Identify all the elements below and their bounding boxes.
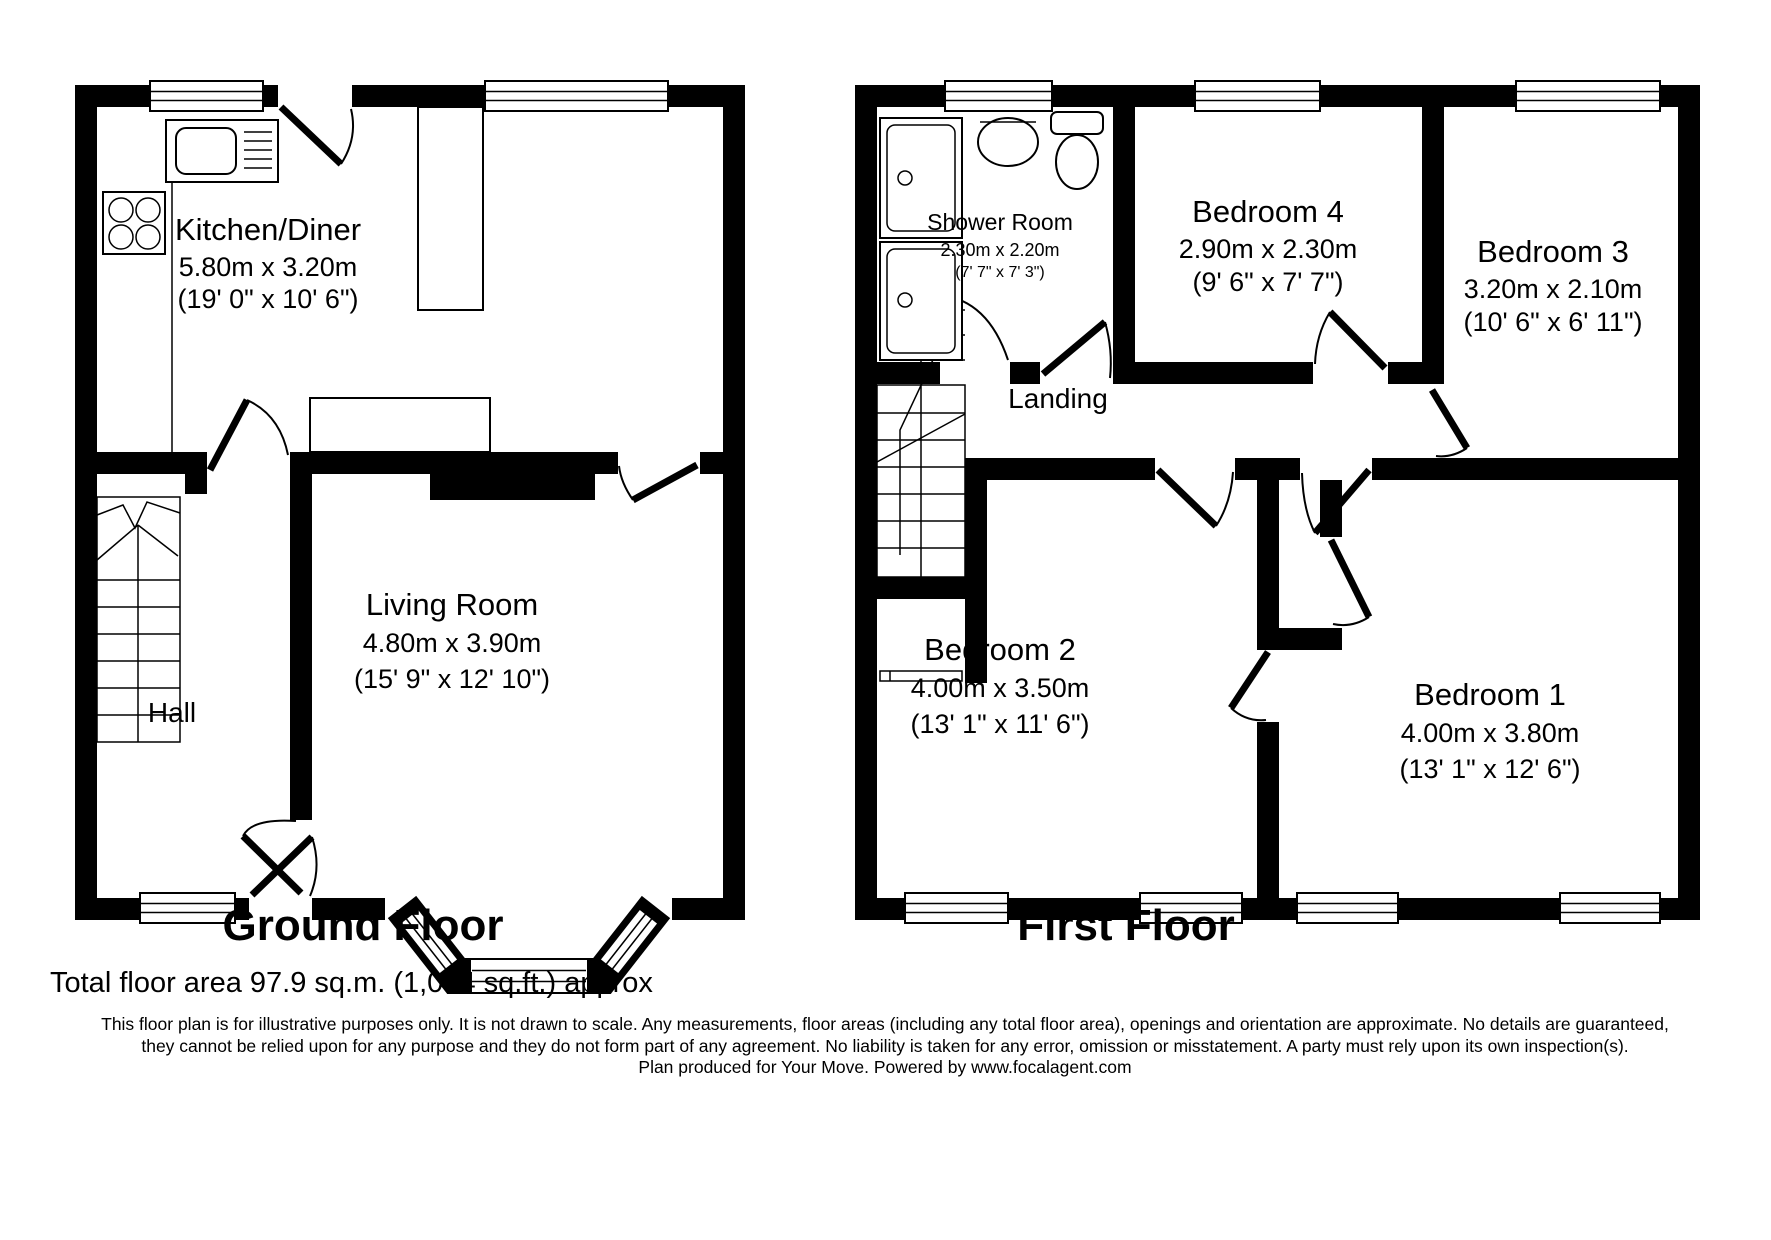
bedroom3-dim-imperial: (10' 6" x 6' 11") [1463, 307, 1642, 337]
bedroom3-door [1432, 390, 1467, 456]
hall-label: Hall [148, 697, 196, 728]
shower-room-dim-imperial: (7' 7" x 7' 3") [955, 264, 1045, 281]
toilet [1051, 112, 1103, 189]
bedroom3-dim-metric: 3.20m x 2.10m [1464, 274, 1643, 304]
kitchen-window-2 [485, 81, 668, 111]
hall-window [140, 893, 235, 923]
back-door [281, 107, 353, 164]
bedroom2-window-1 [905, 893, 1008, 923]
bedroom4-door [1315, 312, 1385, 368]
kitchen-label: Kitchen/Diner [175, 212, 361, 247]
bedroom1-dim-imperial: (13' 1" x 12' 6") [1399, 754, 1580, 784]
kitchen-peninsula [418, 107, 483, 310]
disclaimer-line-1: This floor plan is for illustrative purp… [101, 1014, 1669, 1034]
bedroom1-window-1 [1297, 893, 1398, 923]
bedroom2-door [1158, 470, 1233, 526]
front-door [252, 837, 317, 896]
bedroom3-window [1516, 81, 1660, 111]
kitchen-table [310, 398, 490, 452]
floor-plan-image: Kitchen/Diner 5.80m x 3.20m (19' 0" x 10… [0, 0, 1771, 1240]
bedroom4-window [1195, 81, 1320, 111]
disclaimer-line-3: Plan produced for Your Move. Powered by … [638, 1057, 1131, 1077]
kitchen-dim-metric: 5.80m x 3.20m [179, 252, 358, 282]
landing-door [1043, 322, 1111, 378]
cupboard-door-1 [1331, 540, 1369, 625]
shower-room-window [945, 81, 1052, 111]
chimney-breast [430, 452, 595, 500]
total-floor-area: Total floor area 97.9 sq.m. (1,054 sq.ft… [50, 967, 653, 999]
hob [103, 192, 165, 254]
shower-room-dim-metric: 2.30m x 2.20m [940, 240, 1059, 260]
ground-floor-walls [75, 85, 745, 920]
landing-label: Landing [1008, 383, 1108, 414]
first-floor-title: First Floor [1017, 901, 1235, 950]
bedroom4-dim-metric: 2.90m x 2.30m [1179, 234, 1358, 264]
bedroom1-window-2 [1560, 893, 1660, 923]
bedroom2-dim-metric: 4.00m x 3.50m [911, 673, 1090, 703]
floorplan-page: Kitchen/Diner 5.80m x 3.20m (19' 0" x 10… [0, 0, 1771, 1240]
bedroom4-dim-imperial: (9' 6" x 7' 7") [1192, 267, 1343, 297]
kitchen-dim-imperial: (19' 0" x 10' 6") [177, 284, 358, 314]
bedroom4-label: Bedroom 4 [1192, 194, 1344, 229]
first-floor-plan: Shower Room 2.30m x 2.20m (7' 7" x 7' 3"… [855, 81, 1700, 923]
living-room-dim-metric: 4.80m x 3.90m [363, 628, 542, 658]
kitchen-window [150, 81, 263, 111]
ground-floor-plan: Kitchen/Diner 5.80m x 3.20m (19' 0" x 10… [75, 81, 745, 993]
kitchen-hall-door [210, 400, 288, 470]
disclaimer-line-2: they cannot be relied upon for any purpo… [141, 1036, 1628, 1056]
kitchen-sink [166, 120, 278, 182]
bedroom2-dim-imperial: (13' 1" x 11' 6") [910, 709, 1089, 739]
living-kitchen-door [619, 465, 697, 500]
ground-floor-title: Ground Floor [222, 901, 503, 950]
shower-room-label: Shower Room [927, 209, 1073, 235]
living-room-label: Living Room [366, 587, 538, 622]
living-room-dim-imperial: (15' 9" x 12' 10") [354, 664, 550, 694]
cupboard-door-2 [1231, 652, 1268, 720]
bedroom1-dim-metric: 4.00m x 3.80m [1401, 718, 1580, 748]
bedroom3-label: Bedroom 3 [1477, 234, 1629, 269]
bedroom2-label: Bedroom 2 [924, 632, 1076, 667]
basin [978, 118, 1038, 166]
bedroom1-label: Bedroom 1 [1414, 677, 1566, 712]
